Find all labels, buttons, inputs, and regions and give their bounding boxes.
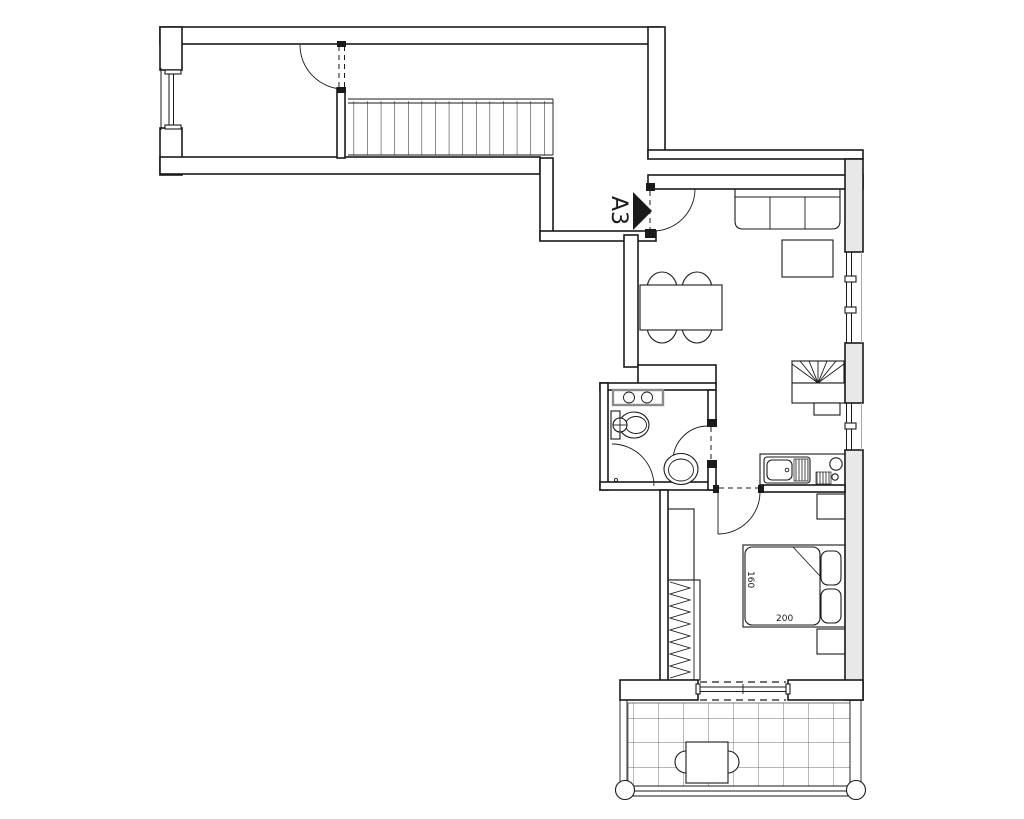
sink-bowl: [767, 460, 792, 480]
bed-length-label: 200: [776, 614, 793, 624]
double-bed: 160 200: [743, 545, 845, 627]
wing-west-wall: [160, 27, 182, 70]
wing-window: [161, 68, 181, 130]
bedroom-door: [713, 485, 764, 534]
landing-door-swing: [300, 45, 344, 89]
north-outer-band: [648, 150, 863, 159]
east-wall: [845, 159, 863, 252]
pillow: [821, 589, 841, 623]
nightstand: [817, 494, 845, 519]
balcony-door: [696, 682, 790, 700]
bedroom-south-wall: [620, 680, 698, 700]
nightstand: [817, 629, 845, 654]
door-jamb: [713, 485, 719, 493]
dish-rack: [816, 472, 831, 484]
wing-north-wall: [160, 27, 660, 44]
living-bathroom-wall: [638, 365, 716, 385]
wc-bowl: [664, 454, 698, 485]
living-window: [845, 252, 862, 343]
shower-drain: [614, 478, 617, 481]
door-jamb: [707, 419, 717, 427]
railing-post: [847, 781, 866, 800]
stair-wing: [160, 27, 665, 241]
door-jamb: [646, 183, 655, 191]
door-jamb: [337, 87, 346, 93]
wardrobe-upper: [668, 509, 694, 580]
toilet: [611, 411, 649, 439]
kitchenette: [760, 454, 845, 486]
hearth: [792, 383, 845, 403]
sofa: [735, 188, 840, 229]
east-wall: [845, 343, 863, 403]
window-mullion: [845, 423, 856, 429]
landing-partition-wall: [337, 88, 345, 158]
bedroom-door-swing: [718, 492, 760, 534]
door-jamb: [645, 229, 656, 238]
corridor-west-wall: [540, 158, 553, 240]
wardrobe: [668, 580, 700, 680]
bedroom-south-wall: [788, 680, 863, 700]
balcony: [616, 700, 866, 800]
bedroom: 160 200: [668, 494, 845, 680]
balcony-tiles: [628, 703, 850, 786]
entrance-door-swing: [653, 189, 695, 231]
drainboard: [794, 459, 808, 481]
entrance-arrow-icon: [633, 192, 652, 230]
floor-plan-drawing: 160 200: [0, 0, 1024, 819]
window-mullion: [845, 307, 856, 313]
railing-post: [616, 781, 635, 800]
staircase: [348, 99, 553, 155]
cooktop-burner-large: [830, 458, 842, 470]
cooktop-burner-small: [832, 474, 838, 480]
bathroom-south-wall: [600, 482, 716, 490]
fireplace: [792, 361, 845, 415]
wing-south-wall: [160, 157, 540, 174]
bathroom-vanity: [613, 390, 663, 405]
pillow: [821, 551, 841, 585]
living-west-wall: [624, 235, 638, 367]
wing-east-wall: [648, 27, 665, 158]
east-wall: [845, 450, 863, 700]
bedroom-north-wall: [760, 485, 845, 492]
floor-plan-canvas: 160 200: [0, 0, 1024, 819]
coffee-table: [782, 240, 833, 277]
dining-table: [640, 285, 722, 330]
bedroom-west-wall: [660, 490, 668, 682]
bed-width-label: 160: [745, 571, 755, 588]
kitchen-window: [845, 403, 862, 450]
balcony-table: [686, 742, 728, 783]
flue: [814, 403, 840, 415]
living-north-wall: [648, 175, 863, 189]
unit-label: A3: [606, 196, 631, 225]
door-jamb: [707, 460, 717, 468]
window-mullion: [845, 276, 856, 282]
bathroom: [611, 390, 698, 486]
shower: [612, 444, 654, 486]
entrance: A3: [606, 183, 695, 238]
bathroom-west-wall: [600, 383, 608, 490]
door-jamb: [758, 485, 764, 493]
